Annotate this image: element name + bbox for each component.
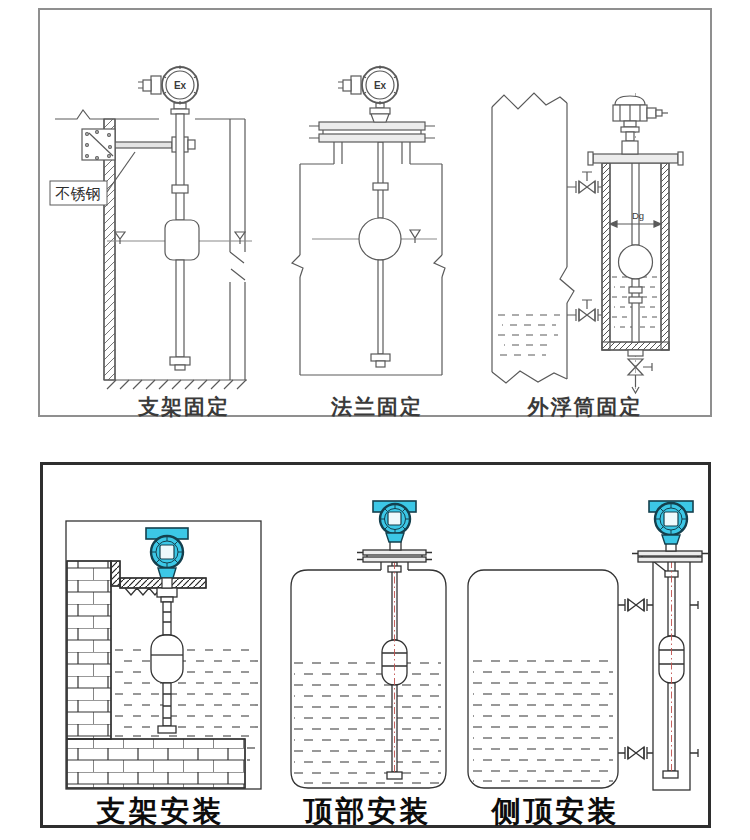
caption-flange-fixing: 法兰固定 (297, 393, 457, 421)
sensor-rod (157, 588, 177, 635)
smart-transmitter-head (373, 501, 416, 542)
side-top-installation-diagram (465, 493, 715, 798)
installation-diagram-sheet: Ex 不锈钢 (0, 0, 750, 840)
upper-isolation-valve (567, 172, 602, 193)
mounting-flange (309, 122, 435, 142)
ball-float (359, 218, 401, 260)
ex-marking: Ex (174, 80, 187, 91)
caption-bracket-fixing: 支架固定 (104, 393, 264, 421)
bracket-fixing-diagram: Ex 不锈钢 (47, 57, 292, 417)
caption-external-chamber-fixing: 外浮筒固定 (495, 393, 675, 421)
stem-end-cap (371, 260, 390, 367)
sensor-stem (171, 103, 189, 220)
lower-isolation-valve (567, 300, 602, 321)
wall-top-line (55, 110, 159, 119)
tank-outline (292, 142, 445, 375)
caption-top-installation: 顶部安装 (265, 792, 470, 832)
liquid (294, 663, 441, 783)
float (151, 635, 183, 683)
ex-transmitter-head (338, 66, 398, 105)
mounting-flange (357, 550, 432, 562)
transmitter-head (613, 96, 668, 154)
chamber-flange (632, 551, 708, 562)
tank-outline (291, 570, 446, 788)
process-vessel (492, 93, 574, 383)
float (165, 220, 199, 260)
caption-side-top-installation: 侧顶安装 (453, 792, 658, 832)
ball-float (619, 245, 653, 279)
installation-methods-panel: 支架安装 顶部安装 侧顶安装 (40, 462, 711, 828)
vessel-liquid (498, 315, 560, 355)
tank-outline (468, 570, 618, 788)
sensor-rod (373, 142, 388, 218)
ex-transmitter-head (138, 66, 198, 105)
water-level-mark (410, 230, 420, 243)
drain-valve (628, 350, 652, 393)
top-installation-diagram (286, 495, 461, 795)
stem-end-cap (158, 683, 176, 733)
external-chamber-fixing-diagram: Dg (480, 87, 715, 417)
ex-marking: Ex (374, 80, 387, 91)
stem-end-cap (170, 260, 190, 370)
diameter-label: Dg (632, 210, 644, 221)
ground-hatch (107, 380, 246, 389)
fixing-methods-panel: Ex 不锈钢 (38, 8, 712, 417)
liquid (473, 661, 613, 781)
rod-collars (629, 279, 642, 342)
bracket-installation-diagram (63, 508, 268, 793)
bracket-plate (82, 129, 115, 160)
stainless-steel-label: 不锈钢 (55, 185, 101, 202)
flange-fixing-diagram: Ex (287, 57, 477, 417)
sensor-neck (370, 103, 390, 122)
caption-bracket-installation: 支架安装 (58, 792, 263, 832)
smart-transmitter-head (649, 501, 693, 544)
tank-right-wall (195, 119, 245, 380)
sensor-rod (632, 163, 639, 245)
